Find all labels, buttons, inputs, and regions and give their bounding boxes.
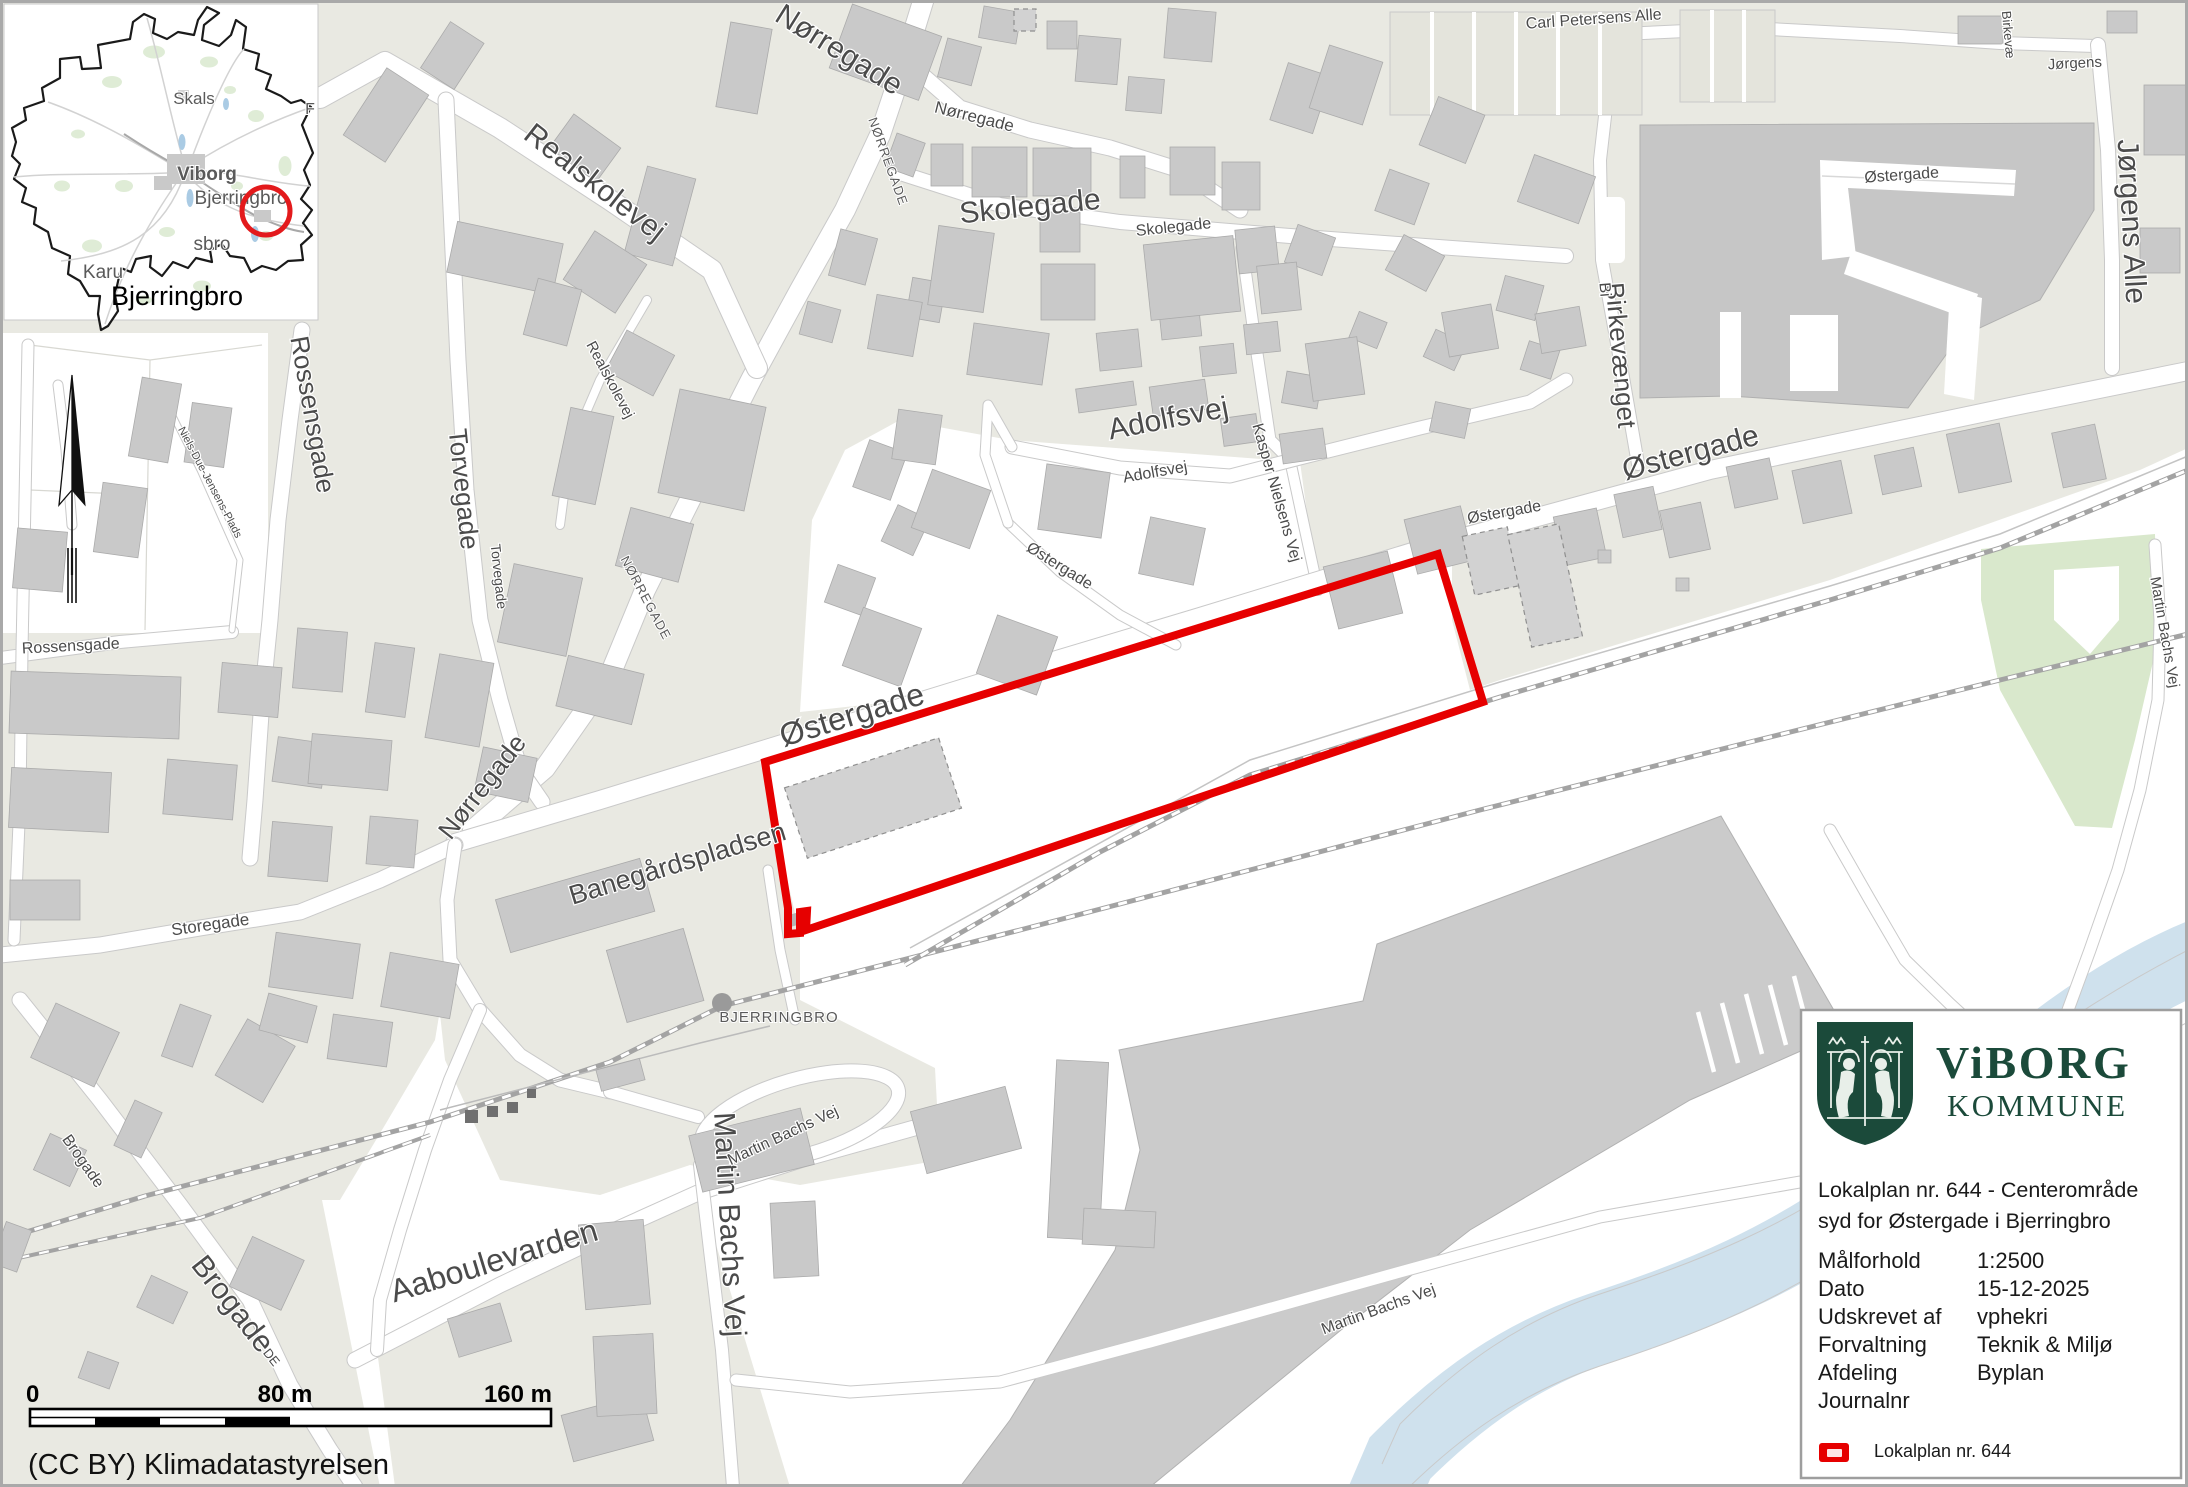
svg-text:Forvaltning: Forvaltning <box>1818 1332 1927 1357</box>
svg-text:Bjerringbro: Bjerringbro <box>111 281 243 311</box>
svg-text:(CC BY) Klimadatastyrelsen: (CC BY) Klimadatastyrelsen <box>28 1449 389 1481</box>
svg-text:15-12-2025: 15-12-2025 <box>1977 1276 2090 1301</box>
svg-text:syd for Østergade i Bjerringbr: syd for Østergade i Bjerringbro <box>1818 1209 2111 1233</box>
svg-text:Bi: Bi <box>1595 282 1613 298</box>
svg-text:sbro: sbro <box>194 234 231 255</box>
svg-text:F: F <box>305 101 315 118</box>
svg-text:Byplan: Byplan <box>1977 1360 2044 1385</box>
svg-text:BJERRINGBRO: BJERRINGBRO <box>719 1009 838 1026</box>
svg-text:Målforhold: Målforhold <box>1818 1248 1921 1273</box>
svg-text:80 m: 80 m <box>258 1381 313 1408</box>
svg-text:KOMMUNE: KOMMUNE <box>1947 1088 2127 1123</box>
svg-text:Udskrevet af: Udskrevet af <box>1818 1304 1942 1329</box>
svg-text:0: 0 <box>26 1381 39 1408</box>
svg-text:Lokalplan nr. 644: Lokalplan nr. 644 <box>1874 1441 2011 1461</box>
svg-text:vphekri: vphekri <box>1977 1304 2048 1329</box>
svg-text:Journalnr: Journalnr <box>1818 1388 1910 1413</box>
svg-text:ViBORG: ViBORG <box>1936 1037 2131 1088</box>
svg-text:Lokalplan nr. 644 - Centerområ: Lokalplan nr. 644 - Centerområde <box>1818 1178 2138 1202</box>
svg-text:Teknik & Miljø: Teknik & Miljø <box>1977 1332 2113 1357</box>
svg-text:Skals: Skals <box>173 89 215 108</box>
svg-text:Karu: Karu <box>83 262 123 283</box>
svg-text:1:2500: 1:2500 <box>1977 1248 2044 1273</box>
svg-text:Dato: Dato <box>1818 1276 1864 1301</box>
svg-text:160 m: 160 m <box>484 1381 552 1408</box>
svg-text:Jørgens: Jørgens <box>2047 54 2102 74</box>
svg-text:Viborg: Viborg <box>177 164 237 185</box>
svg-text:Afdeling: Afdeling <box>1818 1360 1898 1385</box>
